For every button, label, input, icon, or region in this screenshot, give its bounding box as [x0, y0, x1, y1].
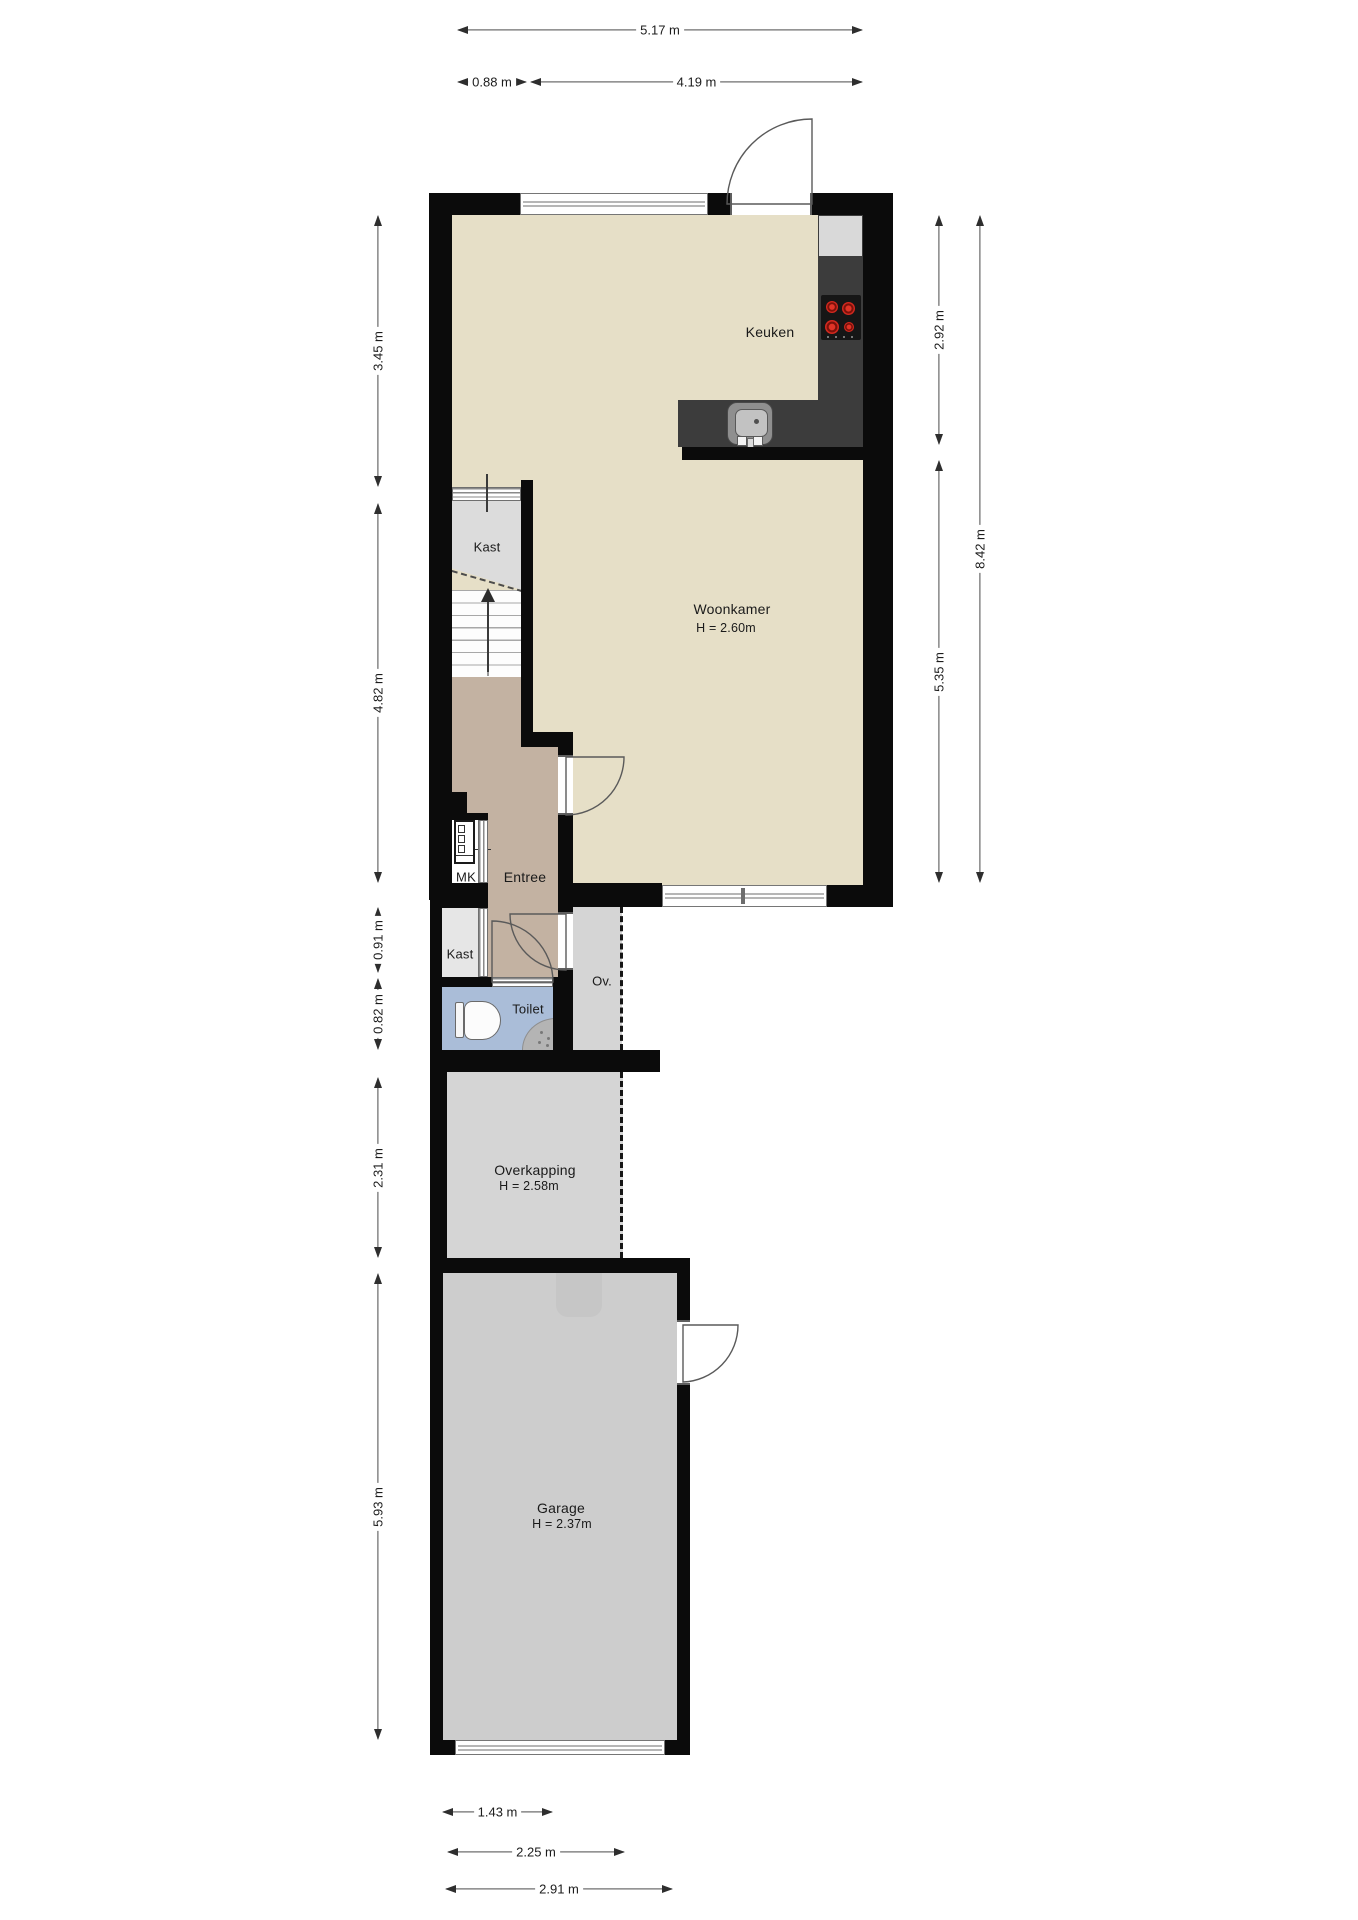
door-opening — [677, 1320, 690, 1385]
wall — [553, 977, 573, 1050]
kitchen-appliance — [819, 216, 862, 256]
wall — [677, 1385, 690, 1740]
dimension-top-right: 4.19 m — [530, 75, 863, 89]
room-height-garage: H = 2.37m — [532, 1517, 592, 1531]
wall — [430, 1258, 690, 1273]
wall — [558, 970, 573, 977]
stairs-up-arrow-icon — [487, 600, 489, 672]
dimension-bottom-entree: 1.43 m — [442, 1805, 553, 1819]
room-label-kast-hal: Kast — [447, 947, 474, 962]
dimension-left-overkapping: 2.31 m — [371, 1077, 385, 1258]
meter-module — [458, 835, 465, 843]
front-door-opening — [558, 912, 573, 970]
floor-entree — [521, 747, 558, 977]
dimension-bottom-garage: 2.91 m — [445, 1882, 673, 1896]
toilet-door-band — [492, 977, 553, 987]
door-swing-arc — [727, 119, 812, 204]
dimension-left-garage: 5.93 m — [371, 1273, 385, 1740]
room-label-garage: Garage — [537, 1500, 585, 1516]
wall — [521, 732, 573, 747]
burner-icon — [844, 322, 854, 332]
dimension-left-kast: 0.91 m — [371, 907, 385, 973]
wall — [708, 193, 730, 215]
stairs-up-arrow-head — [481, 588, 495, 602]
closet-door-leaf — [486, 474, 488, 512]
sink-drain — [754, 419, 759, 424]
wall — [682, 447, 863, 460]
toilet-icon — [455, 1002, 464, 1038]
wall — [677, 1273, 690, 1320]
meter-module — [458, 825, 465, 833]
stove-controls — [827, 336, 829, 338]
dimension-right-keuken: 2.92 m — [932, 215, 946, 445]
dimension-left-keuken: 3.45 m — [371, 215, 385, 487]
wall — [521, 480, 533, 732]
door-opening — [730, 193, 812, 215]
floor-plan: Keuken Woonkamer H = 2.60m Kast Entree M… — [0, 0, 1358, 1920]
faucet-icon — [753, 436, 763, 446]
meter-module — [458, 845, 465, 853]
room-label-kast-boven: Kast — [474, 540, 501, 555]
wall — [558, 747, 573, 755]
dimension-top-overall: 5.17 m — [457, 23, 863, 37]
wall — [863, 193, 893, 907]
window — [520, 193, 708, 215]
wall — [430, 1050, 660, 1072]
garage-door-icon — [556, 1273, 602, 1317]
dimension-right-overall: 8.42 m — [973, 215, 987, 883]
wall — [452, 792, 467, 813]
door-opening — [558, 755, 573, 815]
dimension-right-woonkamer: 5.35 m — [932, 460, 946, 883]
room-label-mk: MK — [456, 870, 476, 885]
room-height-woonkamer: H = 2.60m — [696, 621, 756, 635]
floor-kast-hal — [442, 908, 478, 977]
window — [455, 1740, 665, 1755]
room-height-overkapping: H = 2.58m — [499, 1179, 559, 1193]
sink-basin — [735, 409, 768, 437]
open-side-dashed-line — [620, 907, 623, 1050]
sink-icon — [727, 402, 773, 445]
wall — [558, 883, 662, 907]
wall — [430, 1072, 447, 1258]
burner-icon — [842, 302, 855, 315]
dimension-left-toilet: 0.82 m — [371, 978, 385, 1050]
burner-icon — [825, 320, 839, 334]
room-label-toilet: Toilet — [512, 1002, 544, 1017]
wall — [448, 813, 488, 820]
wall — [430, 1273, 443, 1740]
room-label-keuken: Keuken — [746, 324, 795, 340]
room-label-woonkamer: Woonkamer — [693, 601, 770, 617]
open-side-dashed-line — [620, 1072, 623, 1258]
dimension-left-hal: 4.82 m — [371, 503, 385, 883]
room-label-entree: Entree — [504, 869, 546, 885]
room-label-overkapping: Overkapping — [494, 1162, 576, 1178]
wall — [429, 193, 452, 900]
closet-door-band — [478, 908, 488, 977]
faucet-icon — [737, 436, 747, 446]
door-swing-arc — [683, 1325, 738, 1382]
wall — [430, 883, 488, 908]
dimension-bottom-overkapping: 2.25 m — [447, 1845, 625, 1859]
meter-shelf-line — [456, 855, 473, 856]
wall — [558, 815, 573, 883]
shower-drain-dots — [540, 1031, 543, 1034]
wall — [430, 900, 442, 1050]
closet-door-band — [478, 820, 488, 883]
room-label-ov: Ov. — [592, 974, 612, 989]
dimension-top-left: 0.88 m — [457, 75, 527, 89]
stove-icon — [821, 295, 861, 340]
wall — [827, 885, 893, 907]
window — [662, 885, 827, 907]
wall — [430, 977, 492, 987]
toilet-bowl — [464, 1001, 501, 1040]
meter-cabinet-icon — [454, 820, 475, 864]
burner-icon — [826, 301, 838, 313]
